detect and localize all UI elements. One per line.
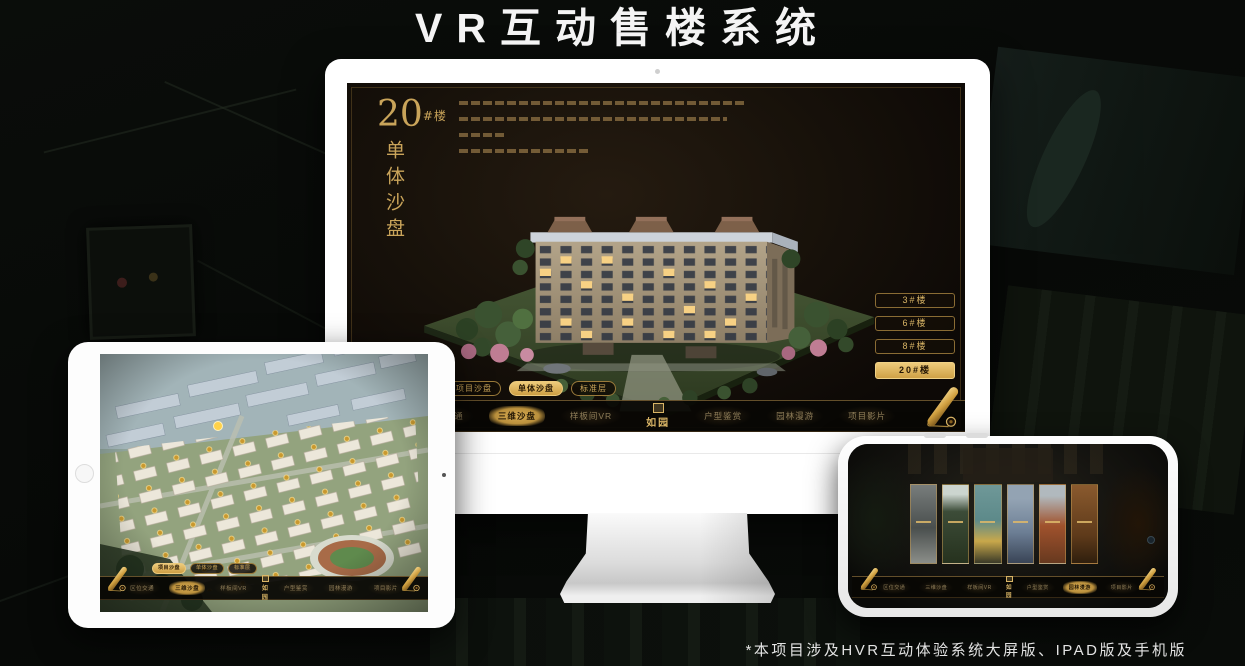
building-number: 20#楼 [377,97,447,134]
nav-item-project-film[interactable]: 项目影片 [839,406,895,426]
warm-light-glow [1098,464,1168,584]
brand-logo: 如园 [262,575,269,601]
scroll-icon[interactable] [106,565,128,593]
nav-item-project-film[interactable]: 项目影片 [1105,581,1139,594]
home-button[interactable] [75,464,94,483]
scroll-icon[interactable] [1137,566,1157,592]
nav-item-3d-sandtable[interactable]: 三维沙盘 [919,581,953,594]
tablet-screen: 项目沙盘 单体沙盘 标准层 区位交通 三维沙盘 样板间VR 如园 户型鉴赏 园林… [100,354,428,612]
gallery-panel[interactable] [974,484,1001,564]
camera-icon [1147,536,1155,544]
nav-item-floorplan[interactable]: 户型鉴赏 [1021,581,1055,594]
seal-icon [262,575,269,582]
nav-item-floorplan[interactable]: 户型鉴赏 [695,406,751,426]
brand-logo-text: 如园 [262,586,269,601]
subtab-standard-floor[interactable]: 标准层 [571,381,616,396]
building-number-text: 20 [377,94,423,135]
gallery-panels [910,484,1098,564]
framed-plaque [86,224,196,340]
scroll-icon[interactable] [924,384,960,430]
promo-composite: VR互动售楼系统 20#楼 单体沙盘 [0,0,1245,666]
sub-tab-group: 项目沙盘 单体沙盘 标准层 [447,381,616,396]
camera-icon [442,473,446,477]
brand-logo: 如园 [1006,576,1013,599]
tablet-nav-bar: 区位交通 三维沙盘 样板间VR 如园 户型鉴赏 园林漫游 项目影片 [100,576,428,600]
subtab-project-sandtable[interactable]: 项目沙盘 [447,381,501,396]
tablet-frame: 项目沙盘 单体沙盘 标准层 区位交通 三维沙盘 样板间VR 如园 户型鉴赏 园林… [68,342,455,628]
gallery-panel[interactable] [1039,484,1066,564]
nav-item-model-room-vr[interactable]: 样板间VR [561,406,621,426]
footnote-text: *本项目涉及HVR互动体验系统大屏版、IPAD版及手机版 [746,639,1187,660]
nav-item-model-room-vr[interactable]: 样板间VR [214,581,253,595]
building-3d-render[interactable] [407,135,887,417]
nav-item-garden-roam[interactable]: 园林漫游 [323,581,359,595]
map-road-line [44,89,297,154]
tablet-sub-tab-group: 项目沙盘 单体沙盘 标准层 [152,563,257,574]
nav-item-garden-roam[interactable]: 园林漫游 [1063,581,1097,594]
floor-button-group: 3#楼 6#楼 8#楼 20#楼 [875,293,955,379]
floor-button-20[interactable]: 20#楼 [875,362,955,379]
nav-item-project-film[interactable]: 项目影片 [368,581,404,595]
smartphone-device: 区位交通 三维沙盘 样板间VR 如园 户型鉴赏 园林漫游 项目影片 [838,436,1178,617]
nav-item-location-traffic[interactable]: 区位交通 [877,581,911,594]
scroll-icon[interactable] [400,565,422,593]
nav-item-3d-sandtable[interactable]: 三维沙盘 [169,581,205,595]
bg-screenshot-river [974,47,1245,275]
volume-button[interactable] [966,433,988,438]
seal-icon [1006,576,1013,582]
nav-item-floorplan[interactable]: 户型鉴赏 [278,581,314,595]
floor-button-8[interactable]: 8#楼 [875,339,955,354]
phone-nav-bar: 区位交通 三维沙盘 样板间VR 如园 户型鉴赏 园林漫游 项目影片 [852,576,1164,598]
volume-button[interactable] [924,433,946,438]
section-title-vertical: 单体沙盘 [381,140,408,244]
nav-item-model-room-vr[interactable]: 样板间VR [961,581,997,594]
brand-logo: 如园 [637,403,679,429]
subtab-single-sandtable[interactable]: 单体沙盘 [509,381,563,396]
building-unit-text: #楼 [423,109,447,123]
nav-item-location-traffic[interactable]: 区位交通 [124,581,160,595]
brand-logo-text: 如园 [646,418,670,429]
page-title: VR互动售楼系统 [0,0,1245,56]
floor-button-6[interactable]: 6#楼 [875,316,955,331]
monitor-stand [560,513,775,603]
gate-silhouette [963,448,1053,482]
phone-frame: 区位交通 三维沙盘 样板间VR 如园 户型鉴赏 园林漫游 项目影片 [838,436,1178,617]
tablet-device: 项目沙盘 单体沙盘 标准层 区位交通 三维沙盘 样板间VR 如园 户型鉴赏 园林… [68,342,455,628]
brand-logo-text: 如园 [1006,585,1013,599]
gallery-panel[interactable] [910,484,937,564]
nav-item-garden-roam[interactable]: 园林漫游 [767,406,823,426]
subtab-project-sandtable[interactable]: 项目沙盘 [152,563,186,574]
floor-button-3[interactable]: 3#楼 [875,293,955,308]
subtab-standard-floor[interactable]: 标准层 [228,563,257,574]
nav-item-3d-sandtable[interactable]: 三维沙盘 [489,406,545,426]
gallery-panel[interactable] [942,484,969,564]
gallery-panel[interactable] [1007,484,1034,564]
phone-screen: 区位交通 三维沙盘 样板间VR 如园 户型鉴赏 园林漫游 项目影片 [848,444,1168,608]
subtab-single-sandtable[interactable]: 单体沙盘 [190,563,224,574]
webcam-icon [655,69,660,74]
scroll-icon[interactable] [859,566,879,592]
gallery-panel[interactable] [1071,484,1098,564]
seal-icon [653,403,664,413]
masterplan-aerial-render[interactable] [100,354,428,612]
